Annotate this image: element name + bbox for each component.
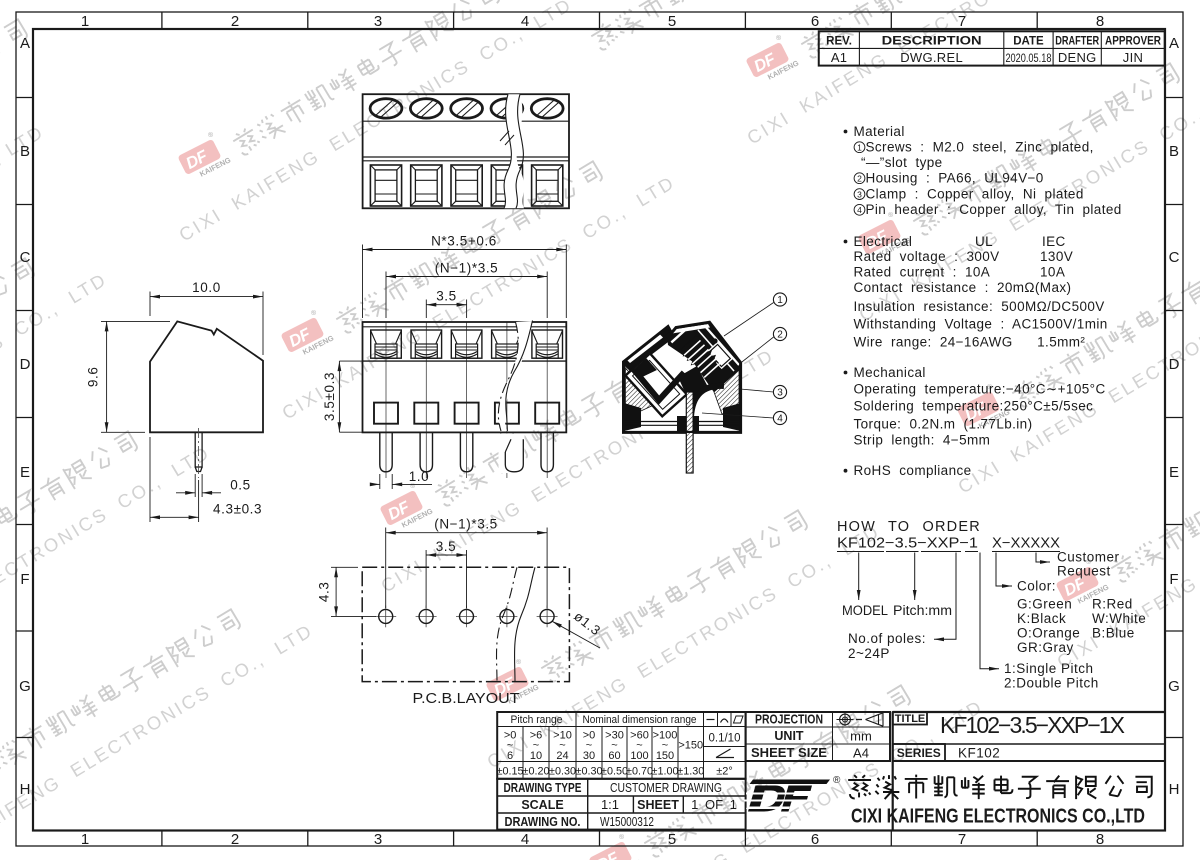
svg-text:3: 3 xyxy=(374,13,382,30)
svg-text:1.0: 1.0 xyxy=(409,469,430,484)
svg-text:4: 4 xyxy=(521,831,529,848)
svg-text:B:Blue: B:Blue xyxy=(1092,626,1135,641)
svg-text:0.5: 0.5 xyxy=(230,478,251,493)
svg-text:0.1/10: 0.1/10 xyxy=(709,733,741,745)
svg-text:G: G xyxy=(1168,678,1180,695)
svg-text:O:Orange: O:Orange xyxy=(1017,626,1080,641)
svg-text:4.3±0.3: 4.3±0.3 xyxy=(213,502,262,517)
svg-text:±2°: ±2° xyxy=(716,765,733,777)
svg-text:A4: A4 xyxy=(853,746,869,761)
svg-text:P.C.B.LAYOUT: P.C.B.LAYOUT xyxy=(413,691,520,707)
svg-text:Operating temperature:−40°C∼+1: Operating temperature:−40°C∼+105°C xyxy=(854,382,1106,397)
svg-text:K:Black: K:Black xyxy=(1017,611,1066,626)
svg-text:N*3.5+0.6: N*3.5+0.6 xyxy=(431,234,497,249)
svg-text:Clamp : Copper alloy, Ni plate: Clamp : Copper alloy, Ni plated xyxy=(866,186,1084,201)
svg-text:D: D xyxy=(20,356,31,373)
svg-text:2: 2 xyxy=(231,831,239,848)
svg-text:H: H xyxy=(20,781,31,798)
svg-text:7: 7 xyxy=(958,831,966,848)
svg-text:2:Double Pitch: 2:Double Pitch xyxy=(1004,676,1099,691)
svg-text:mm: mm xyxy=(850,729,872,744)
svg-text:±0.15: ±0.15 xyxy=(497,765,524,777)
svg-text:APPROVER: APPROVER xyxy=(1105,35,1162,47)
svg-text:Rated voltage : 300V: Rated voltage : 300V xyxy=(854,249,1000,264)
svg-text:1:Single Pitch: 1:Single Pitch xyxy=(1004,661,1094,676)
svg-text:Nominal dimension range: Nominal dimension range xyxy=(583,714,697,726)
svg-text:4: 4 xyxy=(777,414,783,425)
svg-text:W:White: W:White xyxy=(1092,611,1146,626)
svg-text:130V: 130V xyxy=(1040,249,1073,264)
svg-text:±1.30: ±1.30 xyxy=(677,765,704,777)
svg-text:2~24P: 2~24P xyxy=(848,646,890,661)
svg-text:UL: UL xyxy=(975,234,993,249)
svg-text:A1: A1 xyxy=(831,50,848,65)
svg-text:UNIT: UNIT xyxy=(774,729,804,743)
svg-text:10: 10 xyxy=(530,750,542,762)
svg-text:Mechanical: Mechanical xyxy=(854,365,926,380)
svg-text:SCALE: SCALE xyxy=(521,798,563,812)
svg-text:2: 2 xyxy=(777,330,783,341)
svg-text:150: 150 xyxy=(656,750,674,762)
svg-text:A: A xyxy=(20,35,30,52)
svg-text:±0.20: ±0.20 xyxy=(523,765,550,777)
svg-text:Customer: Customer xyxy=(1057,550,1120,565)
svg-text:CIXI KAIFENG ELECTRONICS CO.,: CIXI KAIFENG ELECTRONICS CO., LTD xyxy=(0,619,317,860)
svg-text:4: 4 xyxy=(521,13,529,30)
svg-text:3.5: 3.5 xyxy=(436,289,457,304)
svg-text:3: 3 xyxy=(857,189,862,199)
svg-text:±0.50: ±0.50 xyxy=(601,765,628,777)
svg-text:6: 6 xyxy=(811,831,819,848)
svg-text:3: 3 xyxy=(374,831,382,848)
svg-text:(N−1)*3.5: (N−1)*3.5 xyxy=(435,261,499,276)
svg-text:1 OF 1: 1 OF 1 xyxy=(691,797,737,812)
svg-text:TITLE: TITLE xyxy=(895,713,926,725)
svg-text:F: F xyxy=(20,571,29,588)
svg-text:±1.00: ±1.00 xyxy=(652,765,679,777)
svg-text:1: 1 xyxy=(81,13,89,30)
svg-text:6: 6 xyxy=(507,750,513,762)
svg-text:X−XXXXX: X−XXXXX xyxy=(992,536,1060,552)
svg-text:3.5: 3.5 xyxy=(436,539,457,554)
svg-text:2: 2 xyxy=(231,13,239,30)
svg-text:±0.70: ±0.70 xyxy=(626,765,653,777)
svg-text:B: B xyxy=(1169,143,1179,160)
svg-text:1: 1 xyxy=(81,831,89,848)
svg-text:3: 3 xyxy=(777,388,783,399)
svg-text:5: 5 xyxy=(668,13,676,30)
svg-text:Request: Request xyxy=(1057,564,1111,579)
svg-text:CUSTOMER DRAWING: CUSTOMER DRAWING xyxy=(610,780,722,795)
svg-text:Strip length: 4−5mm: Strip length: 4−5mm xyxy=(854,432,991,447)
svg-text:Pitch range: Pitch range xyxy=(511,714,563,726)
svg-text:DWG.REL: DWG.REL xyxy=(900,50,963,65)
svg-text:No.of poles:: No.of poles: xyxy=(848,631,926,646)
svg-text:KF102−3.5−XXP−1X: KF102−3.5−XXP−1X xyxy=(940,712,1126,738)
svg-text:4: 4 xyxy=(857,205,862,215)
svg-text:2020.05.18: 2020.05.18 xyxy=(1005,53,1051,65)
svg-text:5: 5 xyxy=(668,831,676,848)
svg-text:A: A xyxy=(1169,35,1179,52)
svg-text:Rated current : 10A: Rated current : 10A xyxy=(854,264,991,279)
svg-text:H: H xyxy=(1169,781,1180,798)
svg-text:“—”slot type: “—”slot type xyxy=(861,155,943,170)
svg-text:Color:: Color: xyxy=(1017,579,1056,594)
svg-text:D: D xyxy=(1169,356,1180,373)
svg-text:SHEET: SHEET xyxy=(637,798,679,812)
svg-text:MODEL: MODEL xyxy=(842,603,888,618)
svg-text:Pin header : Copper alloy, Tin: Pin header : Copper alloy, Tin plated xyxy=(866,202,1122,217)
svg-text:RoHS compliance: RoHS compliance xyxy=(854,463,972,478)
svg-text:3.5±0.3: 3.5±0.3 xyxy=(322,372,337,421)
svg-text:4.3: 4.3 xyxy=(317,582,332,603)
svg-text:8: 8 xyxy=(1096,13,1104,30)
svg-text:Electrical: Electrical xyxy=(854,234,913,249)
svg-text:CIXI KAIFENG ELECTRONICS CO.,L: CIXI KAIFENG ELECTRONICS CO.,LTD xyxy=(851,806,1145,828)
svg-text:±0.30: ±0.30 xyxy=(549,765,576,777)
svg-text:2: 2 xyxy=(857,174,862,184)
svg-text:KF102: KF102 xyxy=(958,746,1000,761)
svg-text:PROJECTION: PROJECTION xyxy=(755,713,823,727)
svg-text:KF102−3.5−XXP−1: KF102−3.5−XXP−1 xyxy=(837,536,978,552)
svg-text:Contact resistance : 20mΩ(Max): Contact resistance : 20mΩ(Max) xyxy=(854,280,1072,295)
svg-text:C: C xyxy=(20,249,31,266)
svg-text:Withstanding Voltage : AC1500V: Withstanding Voltage : AC1500V/1min xyxy=(854,316,1108,331)
svg-text:JIN: JIN xyxy=(1123,50,1143,65)
svg-text:R:Red: R:Red xyxy=(1092,597,1133,612)
svg-text:CIXI KAIFENG ELECTRONICS CO.,: CIXI KAIFENG ELECTRONICS CO., LTD xyxy=(483,520,884,772)
svg-text:9.6: 9.6 xyxy=(86,367,101,388)
svg-text:Housing : PA66, UL94V−0: Housing : PA66, UL94V−0 xyxy=(866,171,1044,186)
svg-text:F: F xyxy=(1169,571,1178,588)
svg-text:DRAFTER: DRAFTER xyxy=(1055,35,1100,47)
svg-text:Soldering temperature:250°C±5/: Soldering temperature:250°C±5/5sec xyxy=(854,399,1094,414)
svg-text:100: 100 xyxy=(630,750,648,762)
svg-text:Pitch:mm: Pitch:mm xyxy=(893,603,952,618)
svg-text:E: E xyxy=(20,464,30,481)
svg-text:Insulation resistance: 500MΩ/D: Insulation resistance: 500MΩ/DC500V xyxy=(854,299,1105,314)
svg-text:HOW TO ORDER: HOW TO ORDER xyxy=(837,519,981,535)
svg-text:GR:Gray: GR:Gray xyxy=(1017,640,1074,655)
svg-text:DATE: DATE xyxy=(1013,35,1044,47)
svg-text:DESCRIPTION: DESCRIPTION xyxy=(882,35,982,47)
svg-text:Screws : M2.0 steel, Zinc plat: Screws : M2.0 steel, Zinc plated, xyxy=(866,140,1094,155)
svg-text:B: B xyxy=(20,143,30,160)
svg-text:CIXI KAIFENG ELECTRONICS CO.,: CIXI KAIFENG ELECTRONICS CO., LTD xyxy=(743,0,1144,148)
svg-text:IEC: IEC xyxy=(1042,234,1066,249)
svg-text:DENG: DENG xyxy=(1058,50,1097,65)
svg-text:>150: >150 xyxy=(678,740,703,752)
svg-text:W15000312: W15000312 xyxy=(600,815,654,829)
svg-text:REV.: REV. xyxy=(826,35,852,47)
svg-text:DRAWING NO.: DRAWING NO. xyxy=(505,815,581,829)
svg-text:SERIES: SERIES xyxy=(897,746,941,760)
svg-text:G: G xyxy=(19,678,31,695)
svg-text:7: 7 xyxy=(958,13,966,30)
svg-text:6: 6 xyxy=(811,13,819,30)
svg-text:8: 8 xyxy=(1096,831,1104,848)
svg-text:Wire range: 24−16AWG 1.5mm²: Wire range: 24−16AWG 1.5mm² xyxy=(854,334,1086,349)
svg-text:E: E xyxy=(1169,464,1179,481)
svg-text:10.0: 10.0 xyxy=(192,280,221,295)
svg-text:±0.30: ±0.30 xyxy=(576,765,603,777)
svg-text:(N−1)*3.5: (N−1)*3.5 xyxy=(434,517,498,532)
svg-text:C: C xyxy=(1169,249,1180,266)
svg-text:1:1: 1:1 xyxy=(601,797,619,812)
svg-text:Material: Material xyxy=(854,124,905,139)
svg-text:DRAWING TYPE: DRAWING TYPE xyxy=(504,781,582,795)
svg-text:SHEET SIZE: SHEET SIZE xyxy=(751,746,827,760)
svg-text:60: 60 xyxy=(608,750,620,762)
svg-text:1: 1 xyxy=(777,295,783,306)
svg-text:G:Green: G:Green xyxy=(1017,597,1072,612)
svg-text:®: ® xyxy=(833,775,841,786)
svg-text:24: 24 xyxy=(556,750,568,762)
svg-text:1: 1 xyxy=(857,143,862,153)
svg-text:10A: 10A xyxy=(1040,264,1065,279)
svg-text:30: 30 xyxy=(583,750,595,762)
svg-text:Torque: 0.2N.m (1.77Lb.in): Torque: 0.2N.m (1.77Lb.in) xyxy=(854,416,1033,431)
